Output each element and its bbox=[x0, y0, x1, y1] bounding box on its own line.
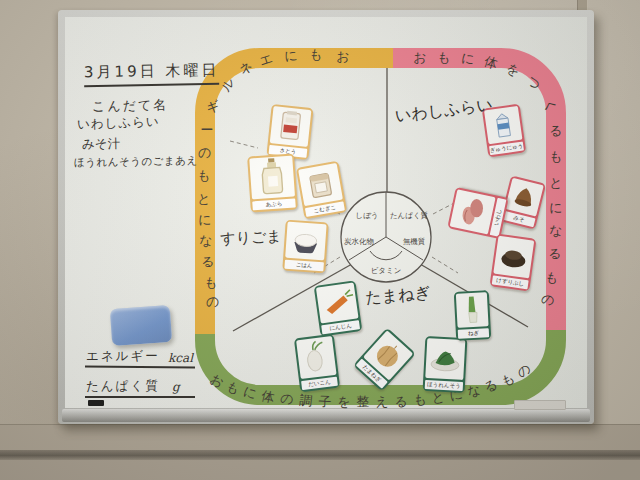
photo-scene: しぼう たんぱく質 炭水化物 無機質 ビタミン おもにエネルギーのもとになるもの… bbox=[0, 0, 640, 480]
menu-item: ほうれんそうのごまあえ bbox=[74, 154, 198, 170]
handwritten-annotation: たまねぎ bbox=[364, 283, 431, 310]
date-note: 3月19日 木曜日 bbox=[84, 61, 220, 87]
menu-item: みそ汁 bbox=[82, 136, 120, 154]
energy-label: エネルギー bbox=[86, 348, 160, 365]
protein-underline bbox=[85, 396, 195, 398]
protein-unit: g bbox=[172, 380, 180, 394]
maker-label bbox=[514, 400, 566, 410]
brand-sticker bbox=[88, 400, 104, 406]
menu-item: いわしふらい bbox=[77, 114, 160, 134]
handwritten-annotation: すりごま bbox=[220, 227, 282, 249]
handwritten-annotation: いわしふらい bbox=[394, 95, 494, 128]
energy-unit: kcal bbox=[168, 351, 193, 365]
whiteboard-eraser bbox=[110, 305, 172, 346]
protein-label: たんぱく質 bbox=[86, 378, 160, 395]
